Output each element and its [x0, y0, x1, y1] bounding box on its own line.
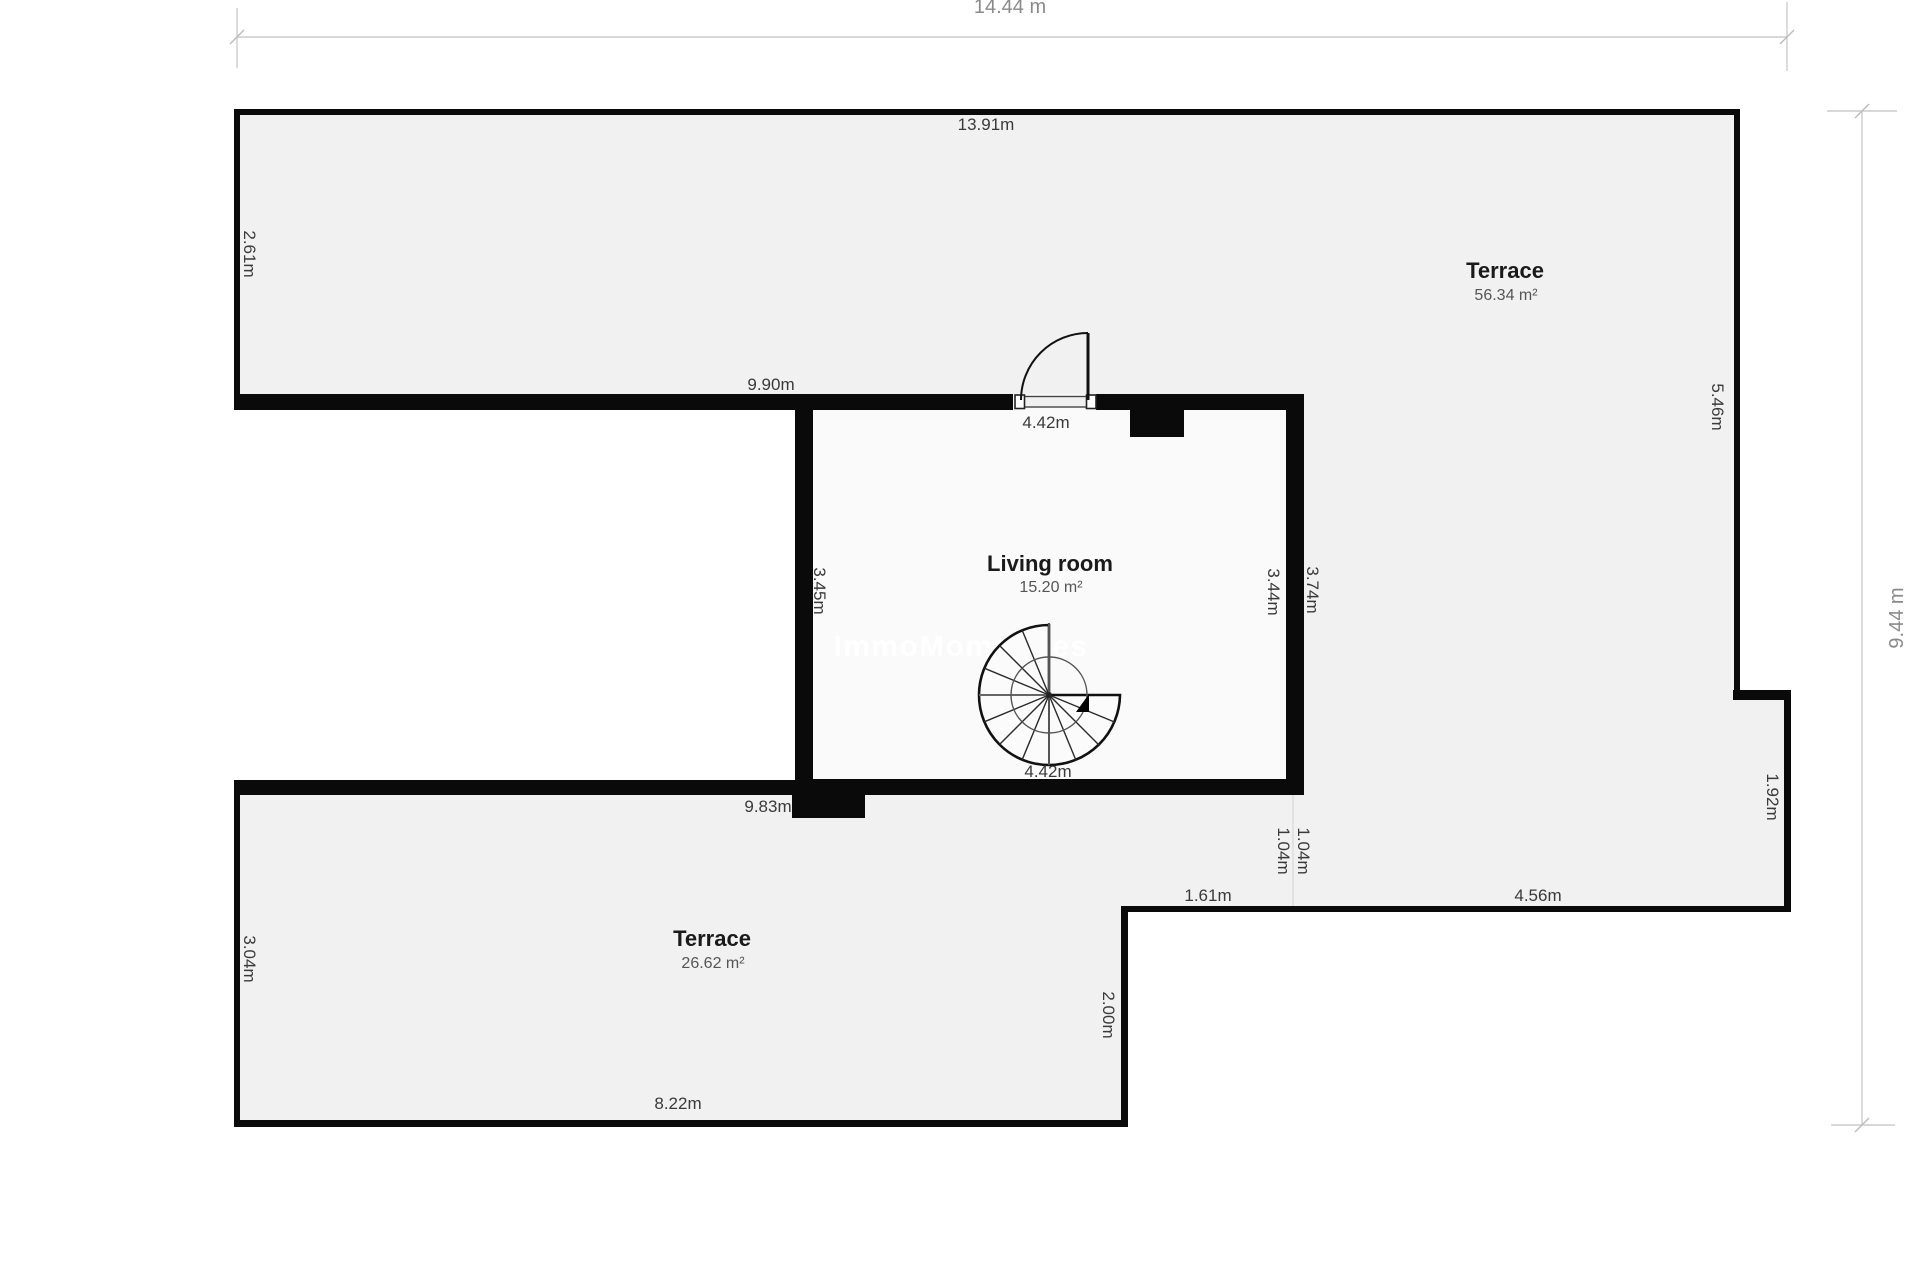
svg-text:5.46m: 5.46m: [1708, 383, 1727, 430]
svg-text:3.74m: 3.74m: [1303, 566, 1322, 613]
svg-text:2.00m: 2.00m: [1099, 991, 1118, 1038]
svg-text:2.61m: 2.61m: [240, 230, 259, 277]
svg-text:Terrace: Terrace: [673, 926, 751, 951]
svg-text:4.56m: 4.56m: [1514, 886, 1561, 905]
svg-text:13.91m: 13.91m: [958, 115, 1015, 134]
svg-text:56.34 m²: 56.34 m²: [1474, 287, 1538, 304]
svg-text:14.44 m: 14.44 m: [974, 0, 1046, 18]
svg-text:4.42m: 4.42m: [1024, 762, 1071, 781]
svg-text:3.44m: 3.44m: [1264, 568, 1283, 615]
svg-text:9.90m: 9.90m: [747, 375, 794, 394]
svg-text:1.04m: 1.04m: [1294, 827, 1313, 874]
svg-text:Terrace: Terrace: [1466, 258, 1544, 283]
svg-text:9.44 m: 9.44 m: [1886, 587, 1908, 648]
svg-text:1.61m: 1.61m: [1184, 886, 1231, 905]
svg-text:3.45m: 3.45m: [810, 567, 829, 614]
svg-text:1.92m: 1.92m: [1763, 773, 1782, 820]
svg-text:8.22m: 8.22m: [654, 1094, 701, 1113]
svg-text:Living room: Living room: [987, 551, 1113, 576]
svg-text:4.42m: 4.42m: [1022, 413, 1069, 432]
svg-text:1.04m: 1.04m: [1274, 827, 1293, 874]
svg-text:9.83m: 9.83m: [744, 797, 791, 816]
svg-text:26.62 m²: 26.62 m²: [681, 955, 745, 972]
svg-text:15.20 m²: 15.20 m²: [1019, 579, 1083, 596]
svg-text:3.04m: 3.04m: [240, 935, 259, 982]
